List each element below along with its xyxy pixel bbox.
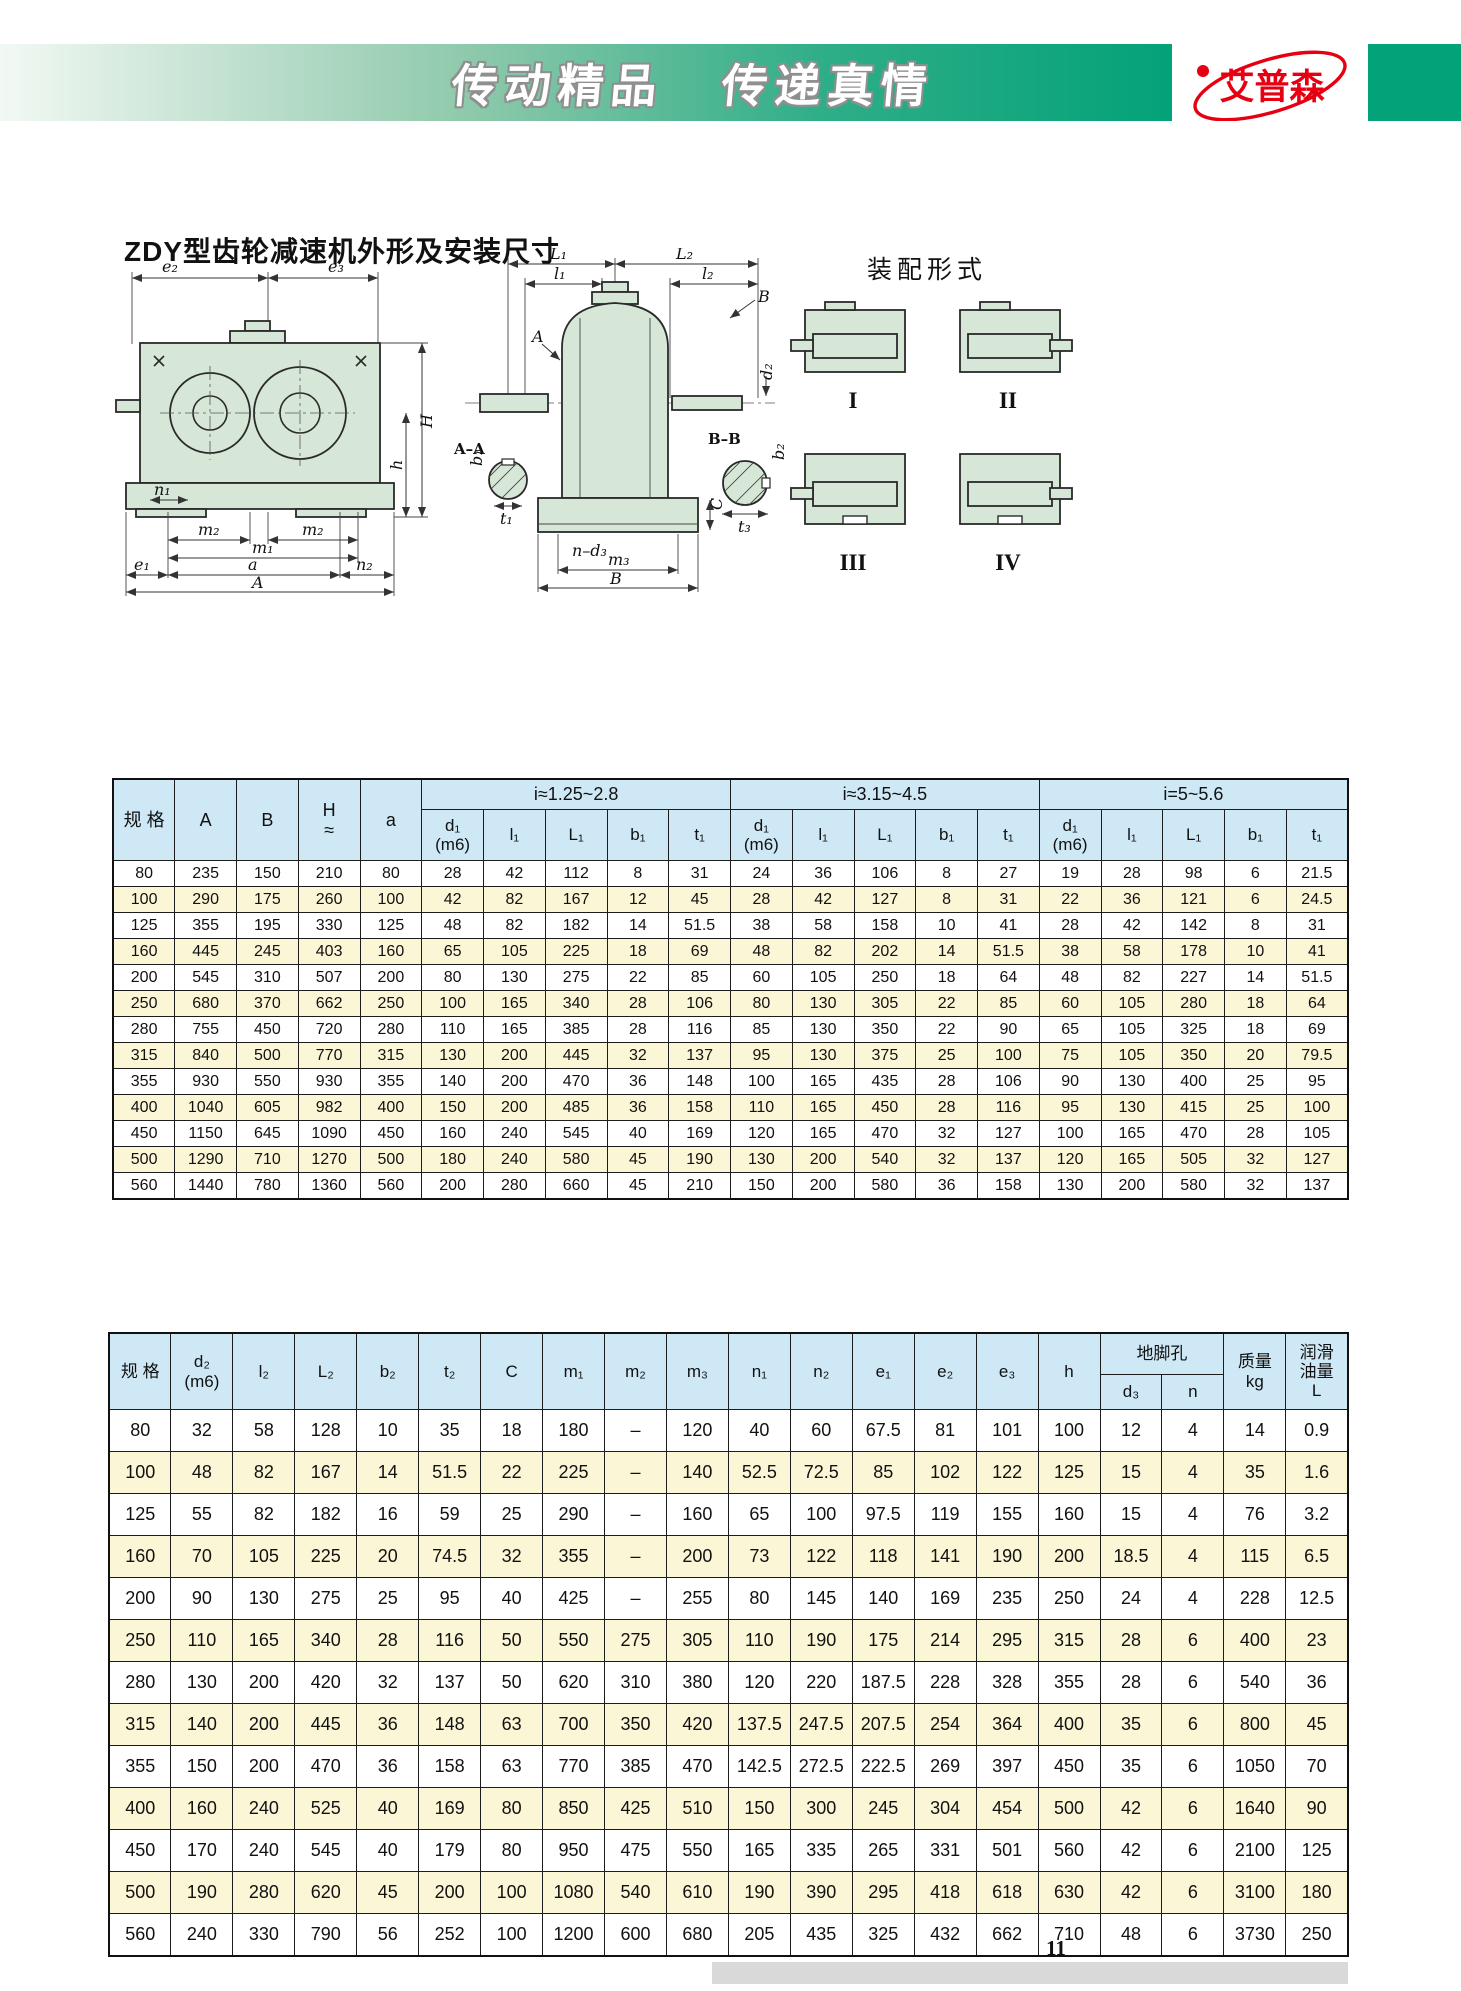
dim-label-H: H (417, 413, 436, 429)
table-cell: 130 (233, 1578, 295, 1620)
page-number: 11 (1046, 1936, 1066, 1961)
table-cell: 41 (1286, 939, 1348, 965)
table-cell: 550 (543, 1620, 605, 1662)
dim-label-m2a: m₂ (198, 520, 220, 539)
table-row: 1002901752601004282167124528421278312236… (113, 887, 1348, 913)
table-cell: 58 (792, 913, 854, 939)
table-cell: 200 (484, 1043, 546, 1069)
col-header-b2: b₂ (357, 1333, 419, 1410)
dim-label-e2: e₂ (162, 257, 178, 276)
col-header-d1: d₁ (m6) (1039, 810, 1101, 861)
table-cell: 385 (605, 1746, 667, 1788)
table-cell: 470 (545, 1069, 607, 1095)
table-cell: 160 (1038, 1494, 1100, 1536)
table-cell: 145 (790, 1578, 852, 1620)
table-cell: 130 (484, 965, 546, 991)
table-cell: 3.2 (1286, 1494, 1348, 1536)
table-cell: 25 (357, 1578, 419, 1620)
table-cell: 470 (666, 1746, 728, 1788)
table-cell: 470 (295, 1746, 357, 1788)
table-row: 160701052252074.532355–20073122118141190… (109, 1536, 1348, 1578)
table-cell: 250 (854, 965, 916, 991)
table-cell: 390 (790, 1872, 852, 1914)
table-cell: 32 (1225, 1147, 1287, 1173)
table-cell: 190 (728, 1872, 790, 1914)
table-cell: 90 (1286, 1788, 1348, 1830)
catalog-page: 传动精品传递真情 艾普森 ZDY型齿轮减速机外形及安装尺寸 (0, 0, 1461, 1991)
table-cell: 340 (545, 991, 607, 1017)
table-cell: 63 (481, 1704, 543, 1746)
table-cell: 82 (233, 1494, 295, 1536)
table-cell: 120 (666, 1410, 728, 1452)
table-cell: 227 (1163, 965, 1225, 991)
table-row: 20090130275259540425–2558014514016923525… (109, 1578, 1348, 1620)
table-cell: 6 (1162, 1704, 1224, 1746)
table-cell: 180 (422, 1147, 484, 1173)
table-cell: 550 (237, 1069, 299, 1095)
table-cell: 445 (175, 939, 237, 965)
table-cell: 18 (916, 965, 978, 991)
table-cell: 4 (1162, 1452, 1224, 1494)
side-view-drawing: L₁ L₂ l₁ l₂ B A d (453, 248, 790, 592)
table-cell: 180 (543, 1410, 605, 1452)
table-cell: 850 (543, 1788, 605, 1830)
col-header-d1: d₁ (m6) (731, 810, 793, 861)
table-cell: 69 (1286, 1017, 1348, 1043)
table-cell: 222.5 (852, 1746, 914, 1788)
table-cell: 80 (481, 1788, 543, 1830)
table-cell: 28 (916, 1095, 978, 1121)
table-cell: 95 (731, 1043, 793, 1069)
table-cell: 200 (792, 1147, 854, 1173)
table-cell: 31 (978, 887, 1040, 913)
table-row: 3559305509303551402004703614810016543528… (113, 1069, 1348, 1095)
table-cell: 51.5 (669, 913, 731, 939)
table-cell: 207.5 (852, 1704, 914, 1746)
table-cell: 95 (419, 1578, 481, 1620)
table-cell: 130 (792, 1043, 854, 1069)
table-cell: 500 (109, 1872, 171, 1914)
group-header-ratio1: i≈1.25~2.8 (422, 779, 731, 810)
table-cell: 315 (360, 1043, 422, 1069)
table-cell: 22 (607, 965, 669, 991)
table-cell: 45 (607, 1147, 669, 1173)
table-row: 5001902806204520010010805406101903902954… (109, 1872, 1348, 1914)
table-cell: 56 (357, 1914, 419, 1957)
table-cell: 158 (854, 913, 916, 939)
col-header-n1: n₁ (728, 1333, 790, 1410)
table-cell: 385 (545, 1017, 607, 1043)
table-cell: 165 (792, 1121, 854, 1147)
table-cell: 290 (175, 887, 237, 913)
header-end-block (1368, 44, 1461, 121)
table-cell: 32 (171, 1410, 233, 1452)
table-cell: 1.6 (1286, 1452, 1348, 1494)
table-cell: 620 (543, 1662, 605, 1704)
dim-label-e1: e₁ (134, 555, 150, 574)
table-cell: 82 (1101, 965, 1163, 991)
table-cell: 507 (298, 965, 360, 991)
table-cell: 210 (669, 1173, 731, 1200)
table-cell: 505 (1163, 1147, 1225, 1173)
table-cell: 680 (666, 1914, 728, 1957)
table-cell: 165 (728, 1830, 790, 1872)
table-cell: 82 (233, 1452, 295, 1494)
front-view-drawing: e₂ e₃ H h (116, 257, 436, 596)
table-cell: 28 (1101, 861, 1163, 887)
table-cell: 80 (728, 1578, 790, 1620)
table-cell: 501 (976, 1830, 1038, 1872)
table-cell: 432 (914, 1914, 976, 1957)
table-cell: 60 (790, 1410, 852, 1452)
technical-drawings: e₂ e₃ H h (110, 248, 1350, 618)
table-cell: 158 (978, 1173, 1040, 1200)
table-cell: 755 (175, 1017, 237, 1043)
table-cell: 200 (1101, 1173, 1163, 1200)
table-cell: 67.5 (852, 1410, 914, 1452)
table-cell: 160 (109, 1536, 171, 1578)
table-cell: 130 (1101, 1069, 1163, 1095)
col-header-b1: b₁ (1225, 810, 1287, 861)
table-cell: 1200 (543, 1914, 605, 1957)
table-row: 2005453105072008013027522856010525018644… (113, 965, 1348, 991)
table-cell: 200 (422, 1173, 484, 1200)
col-header-spec: 规 格 (113, 779, 175, 861)
dim-label-l1: l₁ (554, 264, 566, 283)
table-cell: 450 (360, 1121, 422, 1147)
logo-dot-icon (1197, 65, 1209, 77)
dim-label-A: A (250, 573, 264, 592)
dim-label-B-bottom: B (609, 569, 622, 588)
table-cell: 140 (171, 1704, 233, 1746)
table-cell: 265 (852, 1830, 914, 1872)
dim-label-C: C (707, 498, 726, 510)
table-cell: 150 (731, 1173, 793, 1200)
table-row: 3158405007703151302004453213795130375251… (113, 1043, 1348, 1069)
dim-label-t3: t₃ (738, 517, 751, 536)
table-cell: 137 (419, 1662, 481, 1704)
table-cell: 304 (914, 1788, 976, 1830)
table-cell: 560 (109, 1914, 171, 1957)
table-cell: 240 (233, 1788, 295, 1830)
table-cell: 100 (1286, 1095, 1348, 1121)
table-cell: 130 (171, 1662, 233, 1704)
table-cell: 60 (1039, 991, 1101, 1017)
table-cell: 55 (171, 1494, 233, 1536)
table-cell: 65 (422, 939, 484, 965)
col-header-t1: t₁ (1286, 810, 1348, 861)
table-cell: 35 (1224, 1452, 1286, 1494)
table-cell: 82 (484, 887, 546, 913)
table-cell: 620 (295, 1872, 357, 1914)
table-cell: 112 (545, 861, 607, 887)
table-row: 803258128103518180–120406067.58110110012… (109, 1410, 1348, 1452)
col-header-B: B (237, 779, 299, 861)
table-cell: 355 (109, 1746, 171, 1788)
table-cell: 95 (1286, 1069, 1348, 1095)
table-cell: 73 (728, 1536, 790, 1578)
table-cell: 100 (360, 887, 422, 913)
header-gradient: 传动精品传递真情 (0, 44, 1172, 121)
table-cell: 290 (543, 1494, 605, 1536)
table-cell: 95 (1039, 1095, 1101, 1121)
table-cell: 38 (731, 913, 793, 939)
table-cell: 6.5 (1286, 1536, 1348, 1578)
table-cell: 100 (978, 1043, 1040, 1069)
col-header-A: A (175, 779, 237, 861)
table-cell: 42 (792, 887, 854, 913)
table-cell: 28 (1100, 1620, 1162, 1662)
table-cell: 250 (360, 991, 422, 1017)
table-cell: 580 (854, 1173, 916, 1200)
table-cell: 106 (669, 991, 731, 1017)
table-cell: 48 (171, 1452, 233, 1494)
table-cell: 305 (666, 1620, 728, 1662)
table-row: 2801302004203213750620310380120220187.52… (109, 1662, 1348, 1704)
table-cell: 179 (419, 1830, 481, 1872)
table-cell: 128 (295, 1410, 357, 1452)
table-cell: 10 (916, 913, 978, 939)
dim-label-l2: l₂ (702, 264, 714, 283)
table-cell: 120 (731, 1121, 793, 1147)
table-cell: 250 (109, 1620, 171, 1662)
table-cell: 32 (1225, 1173, 1287, 1200)
table-cell: 310 (237, 965, 299, 991)
table-cell: 180 (1286, 1872, 1348, 1914)
table-cell: 137.5 (728, 1704, 790, 1746)
table-cell: 0.9 (1286, 1410, 1348, 1452)
table-cell: 340 (295, 1620, 357, 1662)
table-cell: 500 (237, 1043, 299, 1069)
table-cell: 1090 (298, 1121, 360, 1147)
table-cell: 100 (113, 887, 175, 913)
table-cell: 280 (484, 1173, 546, 1200)
assembly-label-1: I (849, 388, 858, 413)
table-cell: 150 (422, 1095, 484, 1121)
table-cell: 90 (171, 1578, 233, 1620)
table-cell: 130 (731, 1147, 793, 1173)
slogan-part1: 传动精品 (449, 60, 666, 112)
table-cell: 22 (916, 991, 978, 1017)
table-cell: 137 (1286, 1173, 1348, 1200)
table-cell: 770 (543, 1746, 605, 1788)
table-cell: 6 (1162, 1872, 1224, 1914)
table-cell: 315 (109, 1704, 171, 1746)
table-cell: 982 (298, 1095, 360, 1121)
table-cell: 79.5 (1286, 1043, 1348, 1069)
table-cell: 200 (484, 1095, 546, 1121)
table-cell: 58 (1101, 939, 1163, 965)
table-cell: 580 (545, 1147, 607, 1173)
table-cell: 1080 (543, 1872, 605, 1914)
table-cell: 28 (1039, 913, 1101, 939)
table-cell: 40 (607, 1121, 669, 1147)
table-cell: 210 (298, 861, 360, 887)
dim-label-B-top: B (757, 287, 770, 306)
table-cell: 31 (669, 861, 731, 887)
table-cell: 130 (422, 1043, 484, 1069)
table-cell: 24.5 (1286, 887, 1348, 913)
table-cell: 36 (792, 861, 854, 887)
col-header-L1: L₁ (1163, 810, 1225, 861)
table-cell: 25 (1225, 1095, 1287, 1121)
table-cell: – (605, 1578, 667, 1620)
table-cell: 6 (1162, 1914, 1224, 1957)
table-cell: 355 (360, 1069, 422, 1095)
table-cell: 8 (1225, 913, 1287, 939)
table-cell: 100 (1038, 1410, 1100, 1452)
table-cell: 137 (978, 1147, 1040, 1173)
table-cell: 167 (295, 1452, 357, 1494)
col-header-b1: b₁ (607, 810, 669, 861)
table-cell: – (605, 1536, 667, 1578)
table-cell: 200 (419, 1872, 481, 1914)
table-cell: 1270 (298, 1147, 360, 1173)
table-cell: 130 (1039, 1173, 1101, 1200)
table-cell: 142 (1163, 913, 1225, 939)
table-cell: 28 (916, 1069, 978, 1095)
table-cell: 200 (484, 1069, 546, 1095)
table-cell: 169 (669, 1121, 731, 1147)
table-cell: 202 (854, 939, 916, 965)
table-cell: 27 (978, 861, 1040, 887)
table-cell: 116 (419, 1620, 481, 1662)
table-cell: 150 (728, 1788, 790, 1830)
table-cell: 228 (1224, 1578, 1286, 1620)
table-cell: 330 (233, 1914, 295, 1957)
table-cell: 190 (669, 1147, 731, 1173)
table-cell: 32 (481, 1536, 543, 1578)
dim-label-h: h (387, 460, 406, 470)
table-cell: 116 (669, 1017, 731, 1043)
table-cell: 137 (669, 1043, 731, 1069)
table-cell: 85 (852, 1452, 914, 1494)
table-row: 8023515021080284211283124361068271928986… (113, 861, 1348, 887)
table-cell: 190 (976, 1536, 1038, 1578)
table-cell: 35 (1100, 1704, 1162, 1746)
col-header-l1: l₁ (792, 810, 854, 861)
dim-label-m3: m₃ (608, 550, 630, 569)
col-header-a: a (360, 779, 422, 861)
table-cell: 200 (233, 1746, 295, 1788)
table-cell: 200 (792, 1173, 854, 1200)
table-cell: 16 (357, 1494, 419, 1536)
table-cell: 85 (731, 1017, 793, 1043)
table-cell: 425 (605, 1788, 667, 1830)
dim-label-A-cut: A (530, 327, 544, 346)
table-cell: 195 (237, 913, 299, 939)
table-cell: 500 (1038, 1788, 1100, 1830)
table-cell: 355 (543, 1536, 605, 1578)
table-cell: 1290 (175, 1147, 237, 1173)
table-cell: 240 (484, 1121, 546, 1147)
table-cell: 4 (1162, 1494, 1224, 1536)
table-cell: 930 (298, 1069, 360, 1095)
table-cell: 182 (545, 913, 607, 939)
table-cell: 125 (1038, 1452, 1100, 1494)
table-cell: 355 (1038, 1662, 1100, 1704)
table-cell: 450 (1038, 1746, 1100, 1788)
section-label-BB: B–B (708, 430, 741, 448)
table-cell: 305 (854, 991, 916, 1017)
table-cell: 58 (233, 1410, 295, 1452)
table-cell: 255 (666, 1578, 728, 1620)
table-cell: 425 (543, 1578, 605, 1620)
table-cell: 10 (1225, 939, 1287, 965)
table-cell: 36 (607, 1069, 669, 1095)
table-cell: 155 (976, 1494, 1038, 1536)
table-cell: 22 (916, 1017, 978, 1043)
table-cell: 82 (484, 913, 546, 939)
assembly-form-1: I (791, 302, 905, 413)
table-cell: 105 (1101, 991, 1163, 1017)
table-cell: 710 (237, 1147, 299, 1173)
table-cell: 60 (731, 965, 793, 991)
table-cell: 70 (1286, 1746, 1348, 1788)
table-cell: 110 (731, 1095, 793, 1121)
table-row: 5601440780136056020028066045210150200580… (113, 1173, 1348, 1200)
table-cell: 80 (113, 861, 175, 887)
table-cell: 240 (484, 1147, 546, 1173)
col-header-h: h (1038, 1333, 1100, 1410)
group-header-ratio2: i≈3.15~4.5 (731, 779, 1040, 810)
table-cell: 6 (1162, 1662, 1224, 1704)
dim-label-L2: L₂ (675, 248, 693, 263)
table-cell: 720 (298, 1017, 360, 1043)
table-cell: 38 (1039, 939, 1101, 965)
table-cell: 106 (854, 861, 916, 887)
table-cell: 28 (422, 861, 484, 887)
table-cell: 470 (854, 1121, 916, 1147)
table-cell: 110 (171, 1620, 233, 1662)
table-cell: 36 (916, 1173, 978, 1200)
table-cell: 75 (1039, 1043, 1101, 1069)
table-cell: 81 (914, 1410, 976, 1452)
table-cell: 105 (1286, 1121, 1348, 1147)
table-cell: 435 (854, 1069, 916, 1095)
dim-label-e3: e₃ (328, 257, 344, 276)
table-cell: 15 (1100, 1452, 1162, 1494)
table-cell: 1360 (298, 1173, 360, 1200)
dim-label-b2: b₂ (769, 443, 788, 460)
table-cell: 420 (295, 1662, 357, 1704)
table-cell: 14 (916, 939, 978, 965)
table-cell: 260 (298, 887, 360, 913)
table-cell: 325 (1163, 1017, 1225, 1043)
col-header-e1: e₁ (852, 1333, 914, 1410)
table-cell: 250 (1286, 1914, 1348, 1957)
col-header-l1: l₁ (1101, 810, 1163, 861)
table-row: 4501150645109045016024054540169120165470… (113, 1121, 1348, 1147)
table-cell: 125 (113, 913, 175, 939)
table-cell: 435 (790, 1914, 852, 1957)
table-cell: 12 (1100, 1410, 1162, 1452)
table-row: 1255582182165925290–1606510097.511915516… (109, 1494, 1348, 1536)
table-cell: 41 (978, 913, 1040, 939)
table-cell: 252 (419, 1914, 481, 1957)
table-cell: 560 (113, 1173, 175, 1200)
table-cell: 420 (666, 1704, 728, 1746)
col-header-mass: 质量 kg (1224, 1333, 1286, 1410)
table-cell: 63 (481, 1746, 543, 1788)
slogan-text: 传动精品传递真情 (391, 50, 937, 116)
table-cell: 80 (360, 861, 422, 887)
table-cell: 23 (1286, 1620, 1348, 1662)
table-cell: 169 (914, 1578, 976, 1620)
table-cell: 130 (1101, 1095, 1163, 1121)
table-cell: 65 (1039, 1017, 1101, 1043)
table-cell: 2100 (1224, 1830, 1286, 1872)
